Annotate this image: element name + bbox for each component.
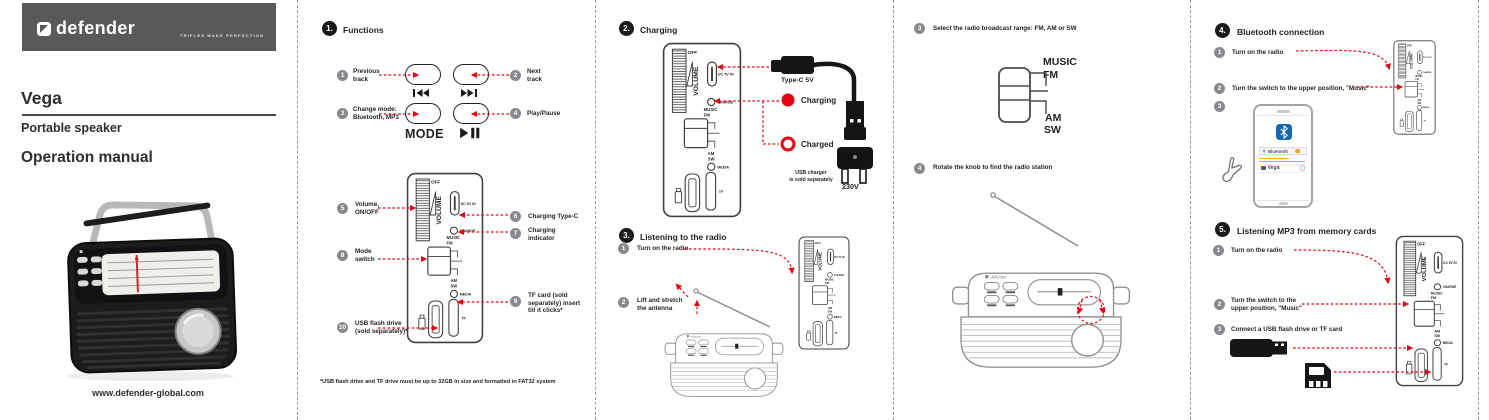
brand-wordmark: defender	[56, 18, 135, 39]
previous-track-button	[405, 64, 441, 85]
section-5-number: 5.	[1215, 222, 1230, 237]
phone-screen: Bluetooth Vega	[1257, 115, 1309, 201]
device-settings-icon	[1300, 165, 1306, 171]
mp3-step-3-label: Connect a USB flash drive or TF card	[1231, 326, 1342, 334]
radio-outline-drawing	[948, 248, 1134, 371]
website-link[interactable]: www.defender-global.com	[40, 388, 256, 398]
callout-9-label: TF card (sold separately) insert till it…	[528, 292, 580, 315]
type-c-plug-body	[781, 56, 814, 74]
callout-arrows	[378, 50, 1429, 372]
mp3-step-2-label: Turn the switch to the upper position, "…	[1231, 297, 1302, 312]
product-type: Portable speaker	[21, 121, 122, 135]
bt-step-2: 2	[1214, 83, 1225, 94]
callout-10-label: USB flash drive (sold separately)*	[355, 320, 408, 335]
wall-charger	[837, 147, 873, 169]
play-pause-button	[453, 103, 489, 124]
phone-speaker	[1277, 110, 1290, 113]
next-track-button	[453, 64, 489, 85]
section-2-number: 2.	[619, 21, 634, 36]
callout-7: 7	[510, 228, 521, 239]
section-2-title: Charging	[640, 25, 677, 35]
radio-step-1: 1	[618, 243, 629, 254]
bt-step-2-label: Turn the switch to the upper position, "…	[1232, 85, 1370, 93]
section-3-number: 3.	[619, 228, 634, 243]
bt-step-3: 3	[1214, 101, 1225, 112]
radio-step-2-label: Lift and stretch the antenna	[637, 297, 682, 312]
callout-7-label: Charging indicator	[528, 227, 556, 242]
product-name: Vega	[21, 88, 62, 109]
device-name: Vega	[1268, 165, 1298, 171]
radio-step-2: 2	[618, 297, 629, 308]
mp3-step-3: 3	[1214, 324, 1225, 335]
band-fm-label: FM	[1043, 69, 1058, 81]
speaker-device-icon	[1261, 166, 1266, 171]
callout-3: 3	[337, 108, 348, 119]
side-panel-diagram	[798, 236, 850, 350]
tuning-step-3-label: Select the radio broadcast range: FM, AM…	[933, 25, 1077, 33]
dial-panel	[101, 250, 220, 295]
bluetooth-small-icon	[1262, 149, 1266, 153]
smartphone: Bluetooth Vega	[1253, 104, 1313, 208]
next-track-icon	[457, 88, 481, 98]
band-sw-label: SW	[1044, 124, 1061, 136]
charger-note: USB charger is sold separately	[786, 170, 836, 183]
callout-5-label: Volume, ON/OFF	[355, 201, 379, 216]
charge-state-connector	[763, 101, 779, 144]
footnote: *USB flash drive and TF drive must be up…	[320, 379, 556, 385]
side-panel-diagram	[662, 42, 742, 218]
callout-3-label: Change mode: Bluetooth, MP3	[353, 106, 399, 121]
callout-10: 10	[337, 322, 348, 333]
section-1-number: 1.	[322, 21, 337, 36]
radio-step-1-label: Turn on the radio	[637, 245, 688, 253]
mp3-step-1: 1	[1213, 245, 1224, 256]
callout-5: 5	[337, 203, 348, 214]
column-separator	[297, 0, 298, 420]
column-separator	[595, 0, 596, 420]
band-am-label: AM	[1045, 112, 1061, 124]
tuning-step-4: 4	[914, 163, 925, 174]
usb-a-plug	[846, 101, 864, 127]
usb-flash-drive	[1230, 339, 1287, 357]
brand-header-bar: defender TRIFLES MAKE PERFECTION	[22, 3, 276, 51]
callout-4: 4	[510, 108, 521, 119]
defender-logo-icon	[36, 21, 52, 37]
bluetooth-row-label: Bluetooth	[1268, 149, 1293, 154]
hand-pointer-icon	[1219, 155, 1249, 187]
charging-state-label: Charging	[801, 96, 836, 105]
tuning-step-4-label: Rotate the knob to find the radio statio…	[933, 164, 1052, 172]
phone-home-button	[1279, 202, 1288, 205]
band-music-label: MUSIC	[1043, 56, 1077, 68]
brand-tagline: TRIFLES MAKE PERFECTION	[180, 33, 264, 38]
antenna	[994, 196, 1078, 246]
bluetooth-toggle[interactable]	[1295, 149, 1304, 154]
column-separator	[1478, 0, 1479, 420]
tf-card	[1305, 363, 1331, 388]
callout-1: 1	[337, 70, 348, 81]
type-c-cable-label: Type-C 5V	[781, 77, 814, 84]
callout-6: 6	[510, 211, 521, 222]
mode-button	[405, 103, 441, 124]
mode-button-label: MODE	[405, 127, 441, 141]
title-rule	[22, 114, 276, 116]
bluetooth-settings-row[interactable]: Bluetooth	[1259, 147, 1307, 155]
doc-title: Operation manual	[21, 149, 153, 167]
section-4-title: Bluetooth connection	[1237, 27, 1324, 37]
previous-track-icon	[409, 88, 433, 98]
side-panel-diagram	[406, 172, 484, 344]
bluetooth-logo-icon	[1276, 124, 1292, 140]
charger-prong	[860, 169, 866, 183]
type-c-plug-tip	[771, 60, 782, 72]
tuning-step-3: 3	[914, 23, 925, 34]
callout-8-label: Mode switch	[355, 248, 375, 263]
section-5-title: Listening MP3 from memory cards	[1237, 226, 1376, 236]
callout-1-label: Previous track	[353, 68, 380, 83]
callout-9: 9	[510, 296, 521, 307]
callout-2: 2	[510, 70, 521, 81]
charged-state-label: Charged	[801, 140, 833, 149]
voltage-label: 230V	[842, 182, 859, 191]
mp3-step-1-label: Turn on the radio	[1231, 247, 1282, 255]
play-pause-icon	[459, 127, 480, 139]
charging-indicator-off	[782, 138, 794, 150]
charger-prong	[842, 169, 848, 183]
column-separator	[893, 0, 894, 420]
side-panel-diagram	[1395, 235, 1464, 387]
callout-4-label: Play/Pause	[527, 110, 560, 118]
callout-2-label: Next track	[527, 68, 542, 83]
mp3-step-2: 2	[1214, 299, 1225, 310]
band-switch-diagram	[999, 68, 1048, 122]
section-4-number: 4.	[1215, 23, 1230, 38]
side-panel-diagram	[1393, 40, 1436, 135]
charging-indicator-on	[782, 94, 795, 107]
bt-step-1-label: Turn on the radio	[1232, 49, 1283, 57]
section-1-title: Functions	[343, 25, 384, 35]
device-row[interactable]: Vega	[1259, 164, 1307, 173]
column-separator	[1190, 0, 1191, 420]
section-3-title: Listening to the radio	[640, 232, 726, 242]
callout-6-label: Charging Type-C	[528, 213, 578, 221]
radio-outline-drawing	[662, 317, 786, 399]
bt-step-1: 1	[1214, 47, 1225, 58]
product-photo	[52, 184, 248, 384]
callout-8: 8	[337, 250, 348, 261]
